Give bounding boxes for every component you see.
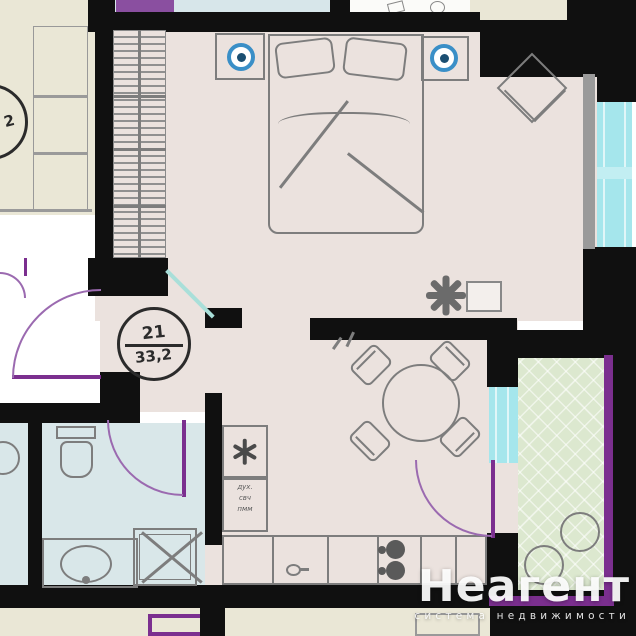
unit-label: 21 33,2 [117, 307, 191, 381]
stove-burners-icon [378, 567, 386, 575]
toilet-tank [56, 426, 96, 439]
nightstand-lamp-icon [227, 43, 255, 71]
wardrobe-divider [113, 205, 166, 208]
shower-inner [139, 534, 191, 580]
floor-plan: 2 дух. свч пмм [0, 0, 636, 636]
wall [200, 608, 225, 636]
wall [330, 0, 350, 16]
side-table [466, 281, 502, 312]
bedroom-inner-wall-line [583, 74, 595, 249]
kitchen-sink-faucet [299, 568, 309, 571]
unit-area: 33,2 [135, 347, 173, 366]
wardrobe-divider [113, 148, 166, 151]
neighbor-door-leaf [24, 258, 27, 276]
kitchen-window-frame [507, 385, 509, 463]
wardrobe-divider [113, 95, 166, 98]
wall [28, 423, 42, 590]
kitchen-window-frame [495, 385, 497, 463]
wall [597, 74, 636, 102]
annotation-line: свч [222, 493, 268, 504]
bath-sink-faucet [82, 576, 90, 584]
neighbor-cabinet-divider [33, 95, 88, 98]
entry-door-swing-icon [12, 289, 101, 378]
pillow [274, 37, 336, 80]
watermark-subtitle: система недвижимости [414, 610, 630, 622]
stove-burners-icon [386, 561, 405, 580]
counter-divider [272, 535, 274, 585]
blanket-edge [278, 112, 410, 136]
counter-divider [377, 535, 379, 585]
annotation-line: пмм [222, 504, 268, 515]
wall [88, 12, 480, 32]
neighbor-cabinets [33, 26, 88, 212]
bedroom-window-divider [597, 167, 632, 179]
wall [95, 25, 115, 270]
wall [567, 0, 636, 20]
stove-burners-icon [378, 546, 386, 554]
unit-number: 21 [141, 323, 166, 342]
annotation-line: дух. [222, 482, 268, 493]
top-strip-beige-room [470, 0, 567, 20]
watermark: Неагент система недвижимости [414, 565, 630, 622]
neighbor-door-swing-icon [0, 272, 26, 298]
wardrobe-rail [138, 30, 141, 258]
appliance-annotation: дух. свч пмм [222, 482, 268, 515]
balcony-stool-icon [560, 512, 600, 552]
watermark-title: Неагент [414, 565, 630, 609]
counter-divider [327, 535, 329, 585]
wall [487, 340, 518, 387]
wall [480, 20, 636, 77]
nightstand-lamp-icon [430, 44, 458, 72]
kitchen-window-icon [489, 385, 518, 463]
wall [100, 372, 140, 405]
stove-burners-icon [386, 540, 405, 559]
neighbor-cabinet-divider [33, 152, 88, 155]
toilet-icon [60, 441, 93, 478]
pillow [342, 36, 408, 81]
wall [205, 393, 222, 545]
